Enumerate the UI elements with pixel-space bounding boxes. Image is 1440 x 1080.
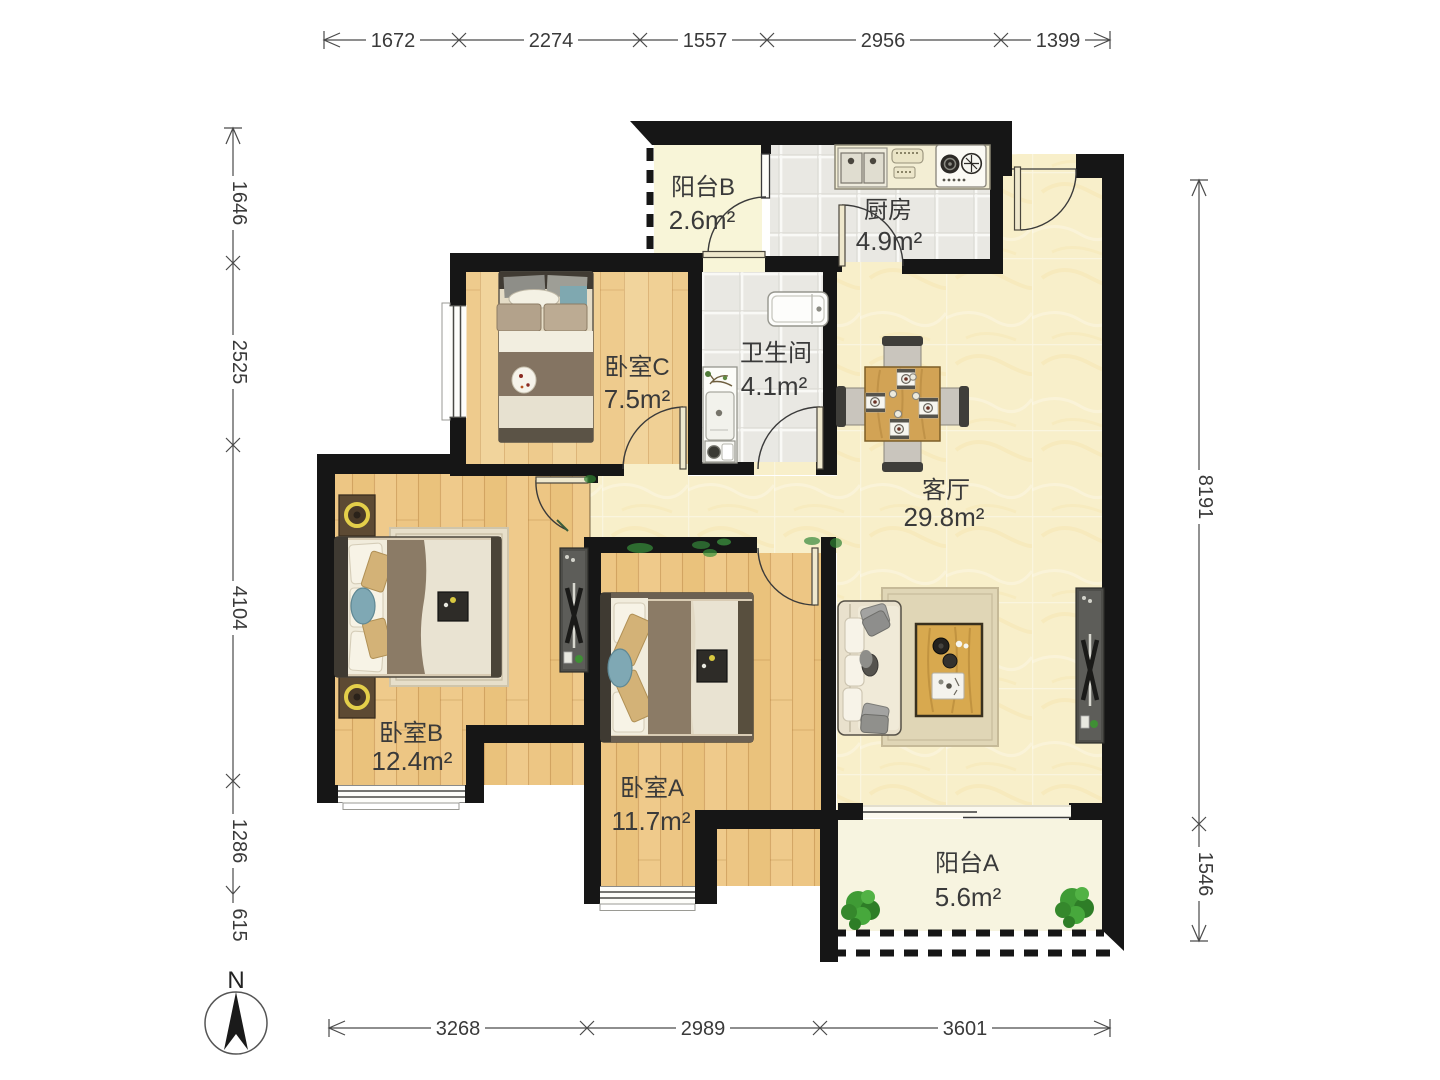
svg-text:客厅: 客厅 <box>922 477 970 504</box>
svg-text:卧室B: 卧室B <box>379 720 443 747</box>
svg-text:厨房: 厨房 <box>864 197 912 224</box>
svg-text:1557: 1557 <box>683 30 728 52</box>
svg-text:阳台B: 阳台B <box>671 174 735 201</box>
svg-text:卫生间: 卫生间 <box>740 340 812 367</box>
svg-text:4.1m²: 4.1m² <box>741 371 808 401</box>
svg-text:阳台A: 阳台A <box>935 850 999 877</box>
svg-text:4104: 4104 <box>228 586 250 631</box>
svg-text:5.6m²: 5.6m² <box>935 882 1002 912</box>
svg-text:卧室C: 卧室C <box>604 354 669 381</box>
svg-text:29.8m²: 29.8m² <box>904 502 985 532</box>
svg-text:1399: 1399 <box>1036 30 1081 52</box>
svg-text:1286: 1286 <box>228 819 250 864</box>
svg-text:卧室A: 卧室A <box>620 775 684 802</box>
svg-text:1646: 1646 <box>228 181 250 226</box>
svg-text:7.5m²: 7.5m² <box>604 384 671 414</box>
svg-text:11.7m²: 11.7m² <box>612 806 691 836</box>
svg-text:3601: 3601 <box>943 1018 988 1040</box>
svg-text:3268: 3268 <box>436 1018 481 1040</box>
svg-text:12.4m²: 12.4m² <box>372 746 453 776</box>
svg-text:4.9m²: 4.9m² <box>856 226 923 256</box>
svg-text:615: 615 <box>228 908 250 941</box>
svg-text:2525: 2525 <box>228 340 250 385</box>
svg-text:2.6m²: 2.6m² <box>669 205 736 235</box>
svg-text:1672: 1672 <box>371 30 416 52</box>
svg-text:2274: 2274 <box>529 30 574 52</box>
svg-text:8191: 8191 <box>1194 475 1216 520</box>
svg-text:2989: 2989 <box>681 1018 726 1040</box>
svg-text:1546: 1546 <box>1194 852 1216 897</box>
svg-text:N: N <box>227 967 244 994</box>
svg-text:2956: 2956 <box>861 30 906 52</box>
